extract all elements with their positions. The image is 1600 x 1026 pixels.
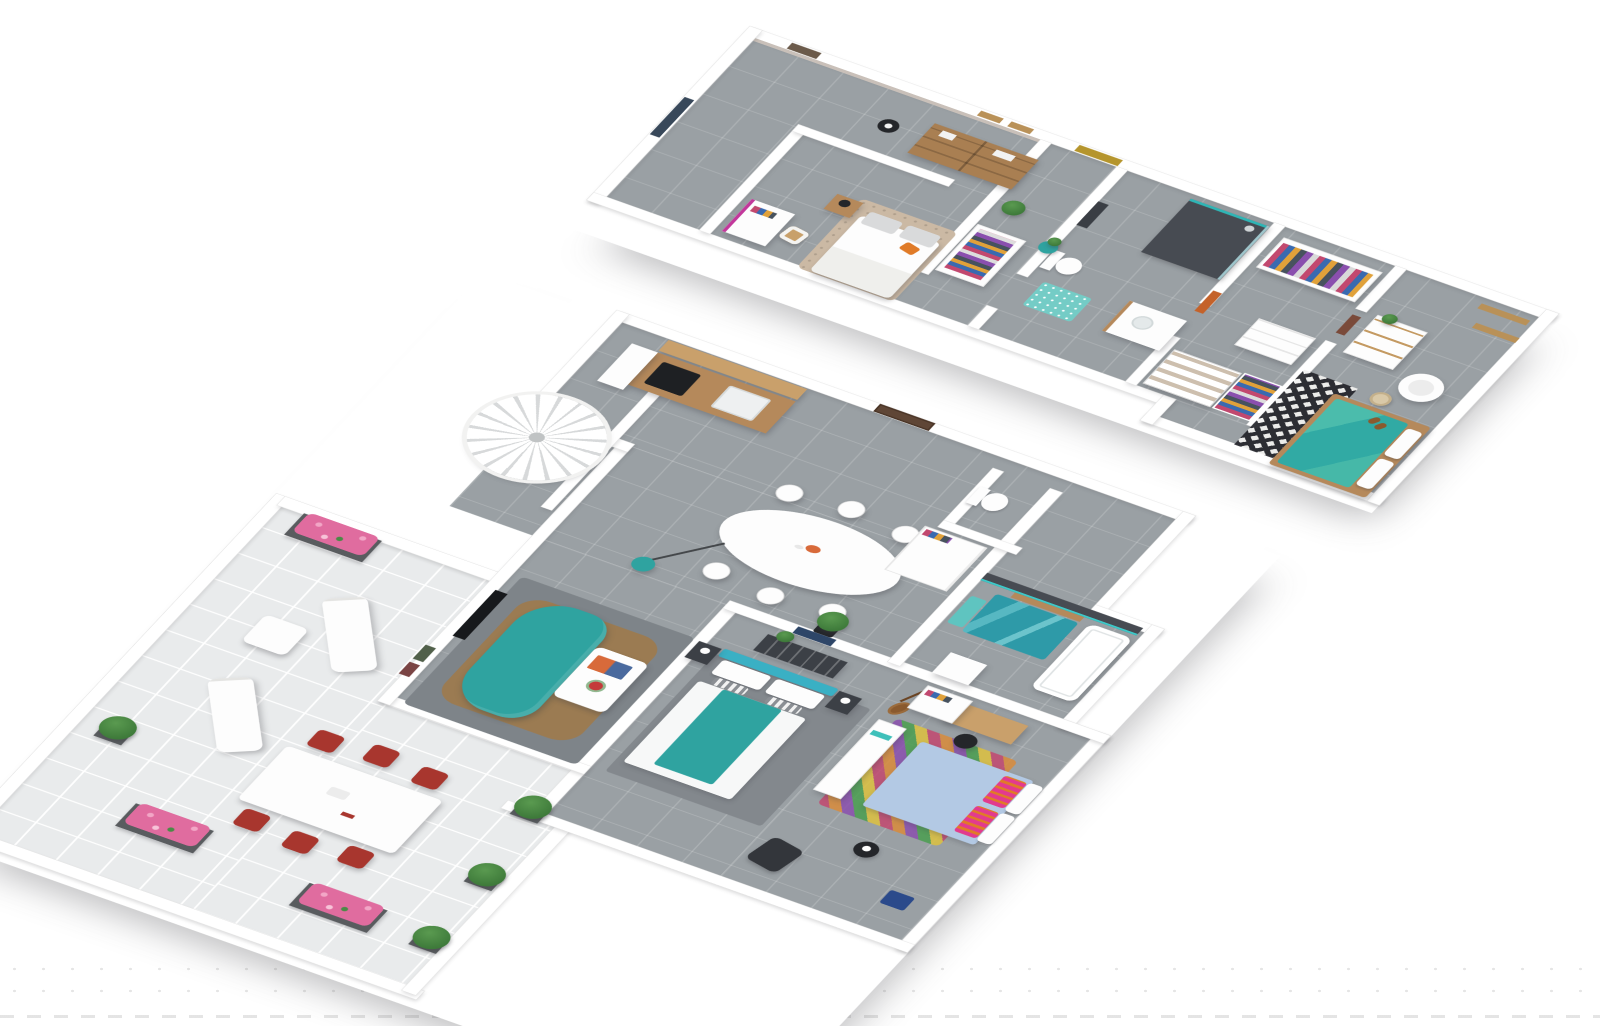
floorplan-scene	[0, 0, 1600, 1026]
